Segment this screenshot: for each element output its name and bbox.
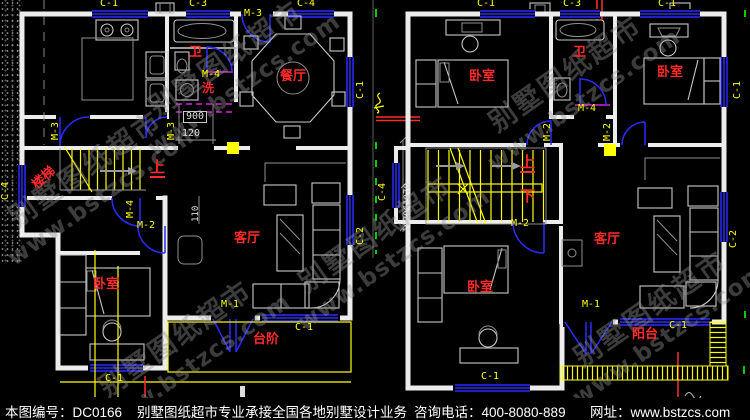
room-label-bedroom: 卧室	[93, 278, 119, 291]
dimension-stair: 107061070	[404, 183, 413, 232]
window-label-c4: C-4	[378, 183, 388, 201]
left-plan-stairs	[60, 146, 146, 192]
website-url: 网址：www.bstzcs.com	[590, 401, 730, 420]
room-label-balcony: 阳台	[632, 328, 658, 341]
right-plan-bedroom-ne-furniture	[644, 24, 720, 104]
left-plan-bath-furniture	[174, 20, 234, 112]
window-label-c1: C-1	[477, 0, 495, 9]
right-plan-bedroom-sw-furniture	[418, 246, 518, 363]
door-label-m3: M-3	[51, 122, 61, 140]
door-label-m1: M-1	[221, 300, 239, 310]
slogan-text: 别墅图纸超市专业承接全国各地别墅设计业务	[137, 401, 407, 420]
room-label-bath: 卫	[189, 46, 202, 59]
phone-number: 咨询电话：400-8080-889	[414, 401, 566, 420]
stairs-up-mark: 上	[150, 160, 165, 178]
window-label-c2: C-2	[729, 230, 739, 248]
door-label-m2: M-2	[603, 123, 613, 141]
door-label-m2: M-2	[137, 221, 155, 231]
window-label-c1: C-1	[481, 372, 499, 382]
window-label-c1: C-1	[105, 374, 123, 384]
dimension-900: 900	[183, 111, 207, 123]
dimension-110: 110	[192, 206, 201, 222]
window-label-c1: C-1	[100, 0, 118, 9]
door-label-m4: M-4	[578, 104, 596, 114]
column-marker	[227, 142, 239, 154]
left-plan	[17, 0, 355, 397]
info-bar: 本图编号：DC0166 别墅图纸超市专业承接全国各地别墅设计业务 咨询电话：40…	[0, 398, 750, 420]
window-label-c4: C-4	[297, 0, 315, 9]
window-label-c1: C-1	[295, 323, 313, 333]
room-label-living: 客厅	[594, 233, 620, 246]
door-label-m2: M-2	[511, 219, 529, 229]
window-label-c3: C-3	[563, 0, 581, 9]
door-label-m4: M-4	[126, 200, 136, 218]
room-label-bath: 卫	[573, 46, 586, 59]
window-label-c1: C-1	[733, 81, 743, 99]
room-label-steps: 台阶	[253, 333, 279, 346]
room-label-bedroom: 卧室	[467, 281, 493, 294]
left-plan-bedroom-furniture	[60, 255, 150, 360]
door-label-m4: M-4	[202, 70, 220, 80]
left-plan-kitchen-furniture	[82, 20, 168, 106]
room-label-dining: 餐厅	[280, 70, 306, 83]
room-label-living: 客厅	[234, 232, 260, 245]
sheet-number: 本图编号：DC0166	[5, 401, 122, 420]
window-label-c1: C-1	[669, 321, 687, 331]
room-label-bedroom: 卧室	[469, 70, 495, 83]
section-symbol	[374, 93, 384, 113]
window-label-c3: C-3	[189, 0, 207, 9]
cad-sheet: 别墅图纸超市 www.bstzcs.com 别墅图纸超市 www.bstzcs.…	[0, 0, 750, 420]
door-label-m2: M-2	[543, 123, 553, 141]
right-plan-bedroom-nw-furniture	[416, 20, 508, 107]
right-plan-living-furniture	[562, 186, 718, 308]
dimension-120: 120	[182, 129, 200, 139]
stairs-up-mark: 上	[520, 155, 535, 173]
door-label-m1: M-1	[582, 300, 600, 310]
stairs-down-mark: 下	[520, 189, 535, 204]
column-marker	[604, 144, 616, 156]
room-label-laundry: 洗	[202, 82, 214, 94]
window-label-c1: C-1	[658, 0, 676, 9]
right-plan-bath-furniture	[554, 20, 604, 100]
door-label-m3: M-3	[244, 9, 262, 19]
window-label-c4: C-4	[1, 182, 11, 200]
window-label-c2: C-2	[356, 227, 366, 245]
window-label-c1: C-1	[356, 81, 366, 99]
room-label-bedroom: 卧室	[657, 66, 683, 79]
door-label-m3: M-3	[167, 122, 177, 140]
